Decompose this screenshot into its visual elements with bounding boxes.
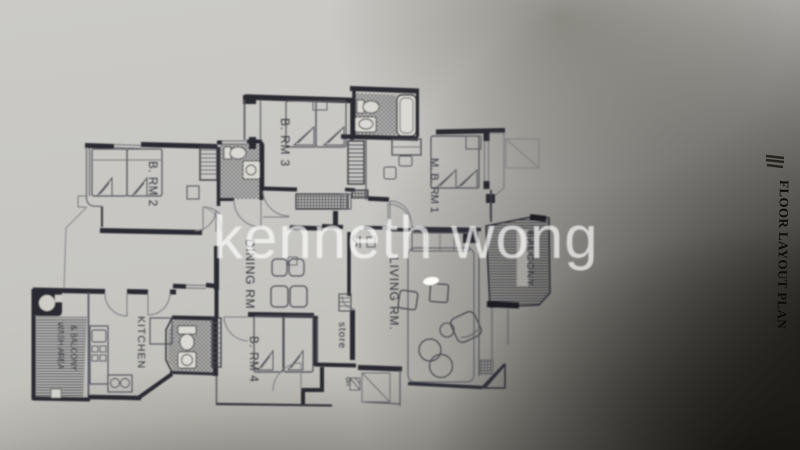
svg-text:B. RM 3: B. RM 3	[278, 118, 292, 167]
svg-text:B. RM 2: B. RM 2	[146, 161, 158, 207]
svg-text:kenneth wong: kenneth wong	[213, 204, 599, 271]
svg-text:& BALCONY: & BALCONY	[69, 325, 78, 371]
svg-text:store: store	[336, 322, 347, 349]
svg-text:WASH AREA: WASH AREA	[56, 322, 65, 370]
svg-text:KITCHEN: KITCHEN	[135, 316, 147, 369]
svg-text:FLOOR LAYOUT PLAN: FLOOR LAYOUT PLAN	[774, 180, 792, 330]
svg-text:B. RM 4: B. RM 4	[247, 336, 259, 382]
